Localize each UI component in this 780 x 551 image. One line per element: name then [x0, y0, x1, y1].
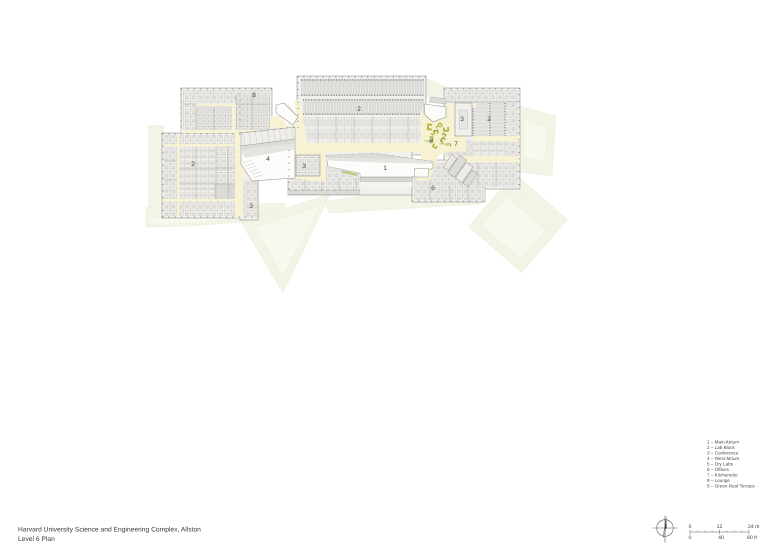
svg-text:5 – Dry Labs: 5 – Dry Labs [707, 462, 734, 467]
svg-text:8: 8 [429, 138, 433, 145]
svg-text:12: 12 [717, 524, 723, 530]
svg-text:6: 6 [431, 185, 435, 192]
svg-text:40: 40 [718, 535, 724, 541]
svg-text:7 – Kitchenette: 7 – Kitchenette [707, 473, 738, 478]
svg-text:6 – Offices: 6 – Offices [707, 467, 730, 472]
svg-text:8 – Lounge: 8 – Lounge [707, 478, 730, 483]
svg-text:1: 1 [383, 165, 387, 172]
svg-text:2: 2 [191, 161, 195, 168]
svg-text:3: 3 [302, 163, 306, 170]
svg-text:0: 0 [689, 535, 692, 541]
svg-text:Harvard University Science and: Harvard University Science and Engineeri… [18, 527, 201, 534]
svg-text:9 – Green Roof Terrace: 9 – Green Roof Terrace [707, 484, 755, 489]
svg-text:3: 3 [460, 116, 464, 123]
svg-text:8: 8 [252, 92, 256, 99]
svg-text:4: 4 [266, 156, 270, 163]
svg-text:2 – Lab Block: 2 – Lab Block [707, 445, 736, 450]
svg-text:Level 6 Plan: Level 6 Plan [18, 536, 55, 543]
svg-text:0: 0 [689, 524, 692, 530]
svg-text:3 – Conference: 3 – Conference [707, 451, 739, 456]
svg-text:80 ft: 80 ft [747, 535, 757, 541]
svg-text:1 – Main Atrium: 1 – Main Atrium [707, 440, 739, 445]
svg-text:4 – West Atrium: 4 – West Atrium [707, 456, 740, 461]
svg-text:2: 2 [487, 116, 491, 123]
svg-text:7: 7 [454, 141, 458, 148]
svg-text:24 m: 24 m [748, 524, 759, 530]
svg-text:3: 3 [249, 203, 253, 210]
svg-text:2: 2 [357, 106, 361, 113]
